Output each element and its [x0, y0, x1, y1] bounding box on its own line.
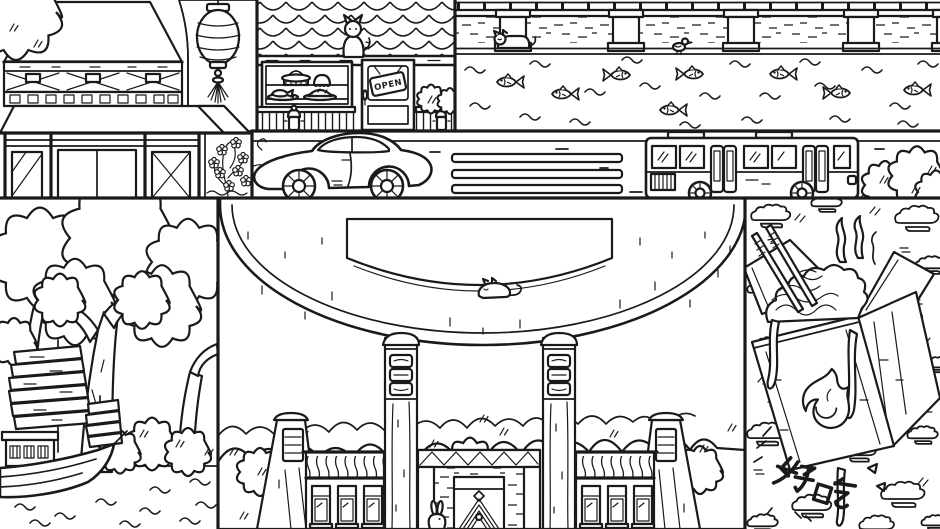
side-building-left — [303, 452, 387, 529]
central-post-left — [383, 333, 419, 529]
window — [606, 486, 628, 528]
illustration-canvas: Black-and-white line-art illustration of… — [0, 0, 940, 529]
city-bus-icon — [646, 132, 858, 204]
crosswalk-bars — [452, 154, 622, 193]
window — [632, 486, 654, 528]
panel-canal — [455, 0, 940, 131]
panel-noodles: 好吃 — [744, 194, 940, 529]
pudding-icon — [314, 75, 330, 87]
window — [336, 486, 358, 528]
window — [362, 486, 384, 528]
central-post-right — [541, 333, 577, 529]
display-window — [262, 62, 352, 108]
balustrade-pillar — [608, 10, 644, 51]
balustrade-pillar — [723, 10, 759, 51]
window — [580, 486, 602, 528]
window — [310, 486, 332, 528]
panel-bakery: OPEN — [254, 0, 462, 131]
cabin-roof — [2, 432, 58, 440]
shop-door: OPEN — [362, 60, 414, 130]
panel-park — [0, 178, 229, 529]
side-building-right — [573, 452, 657, 529]
gate-door — [454, 477, 504, 529]
illustration-page: 好吃 Black-and-white line-art illustration… — [0, 0, 940, 529]
rabbit-icon — [429, 501, 446, 529]
bus-door — [711, 146, 736, 192]
panel-pavilion — [0, 0, 257, 198]
panel-gate — [218, 198, 746, 529]
central-building — [418, 450, 540, 529]
balustrade-pillar — [843, 10, 879, 51]
